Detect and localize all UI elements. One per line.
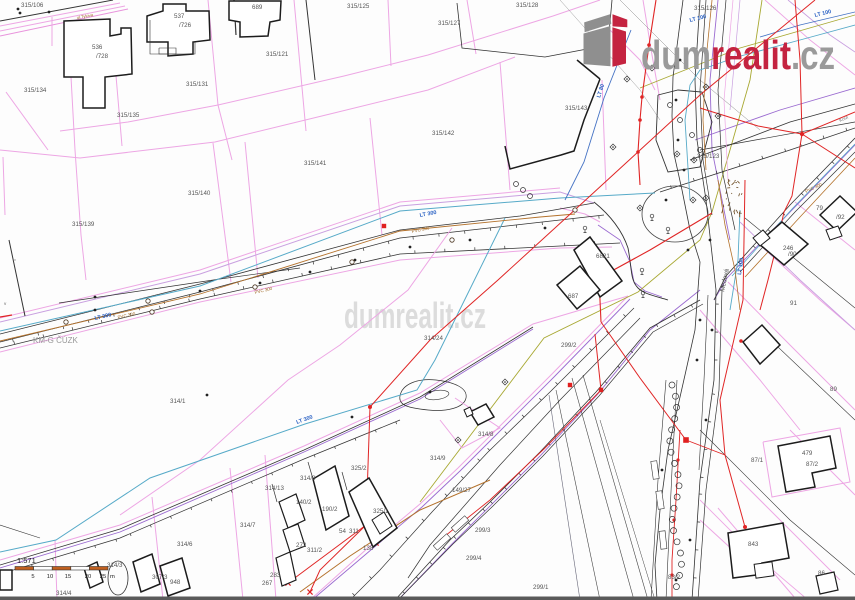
svg-text:1:571: 1:571 xyxy=(17,556,36,565)
svg-text:315/140: 315/140 xyxy=(188,190,211,197)
svg-text:246: 246 xyxy=(783,245,794,252)
svg-text:m: m xyxy=(110,574,115,580)
svg-text:689: 689 xyxy=(252,4,263,11)
svg-text:86: 86 xyxy=(818,570,825,577)
svg-text:6821: 6821 xyxy=(596,253,610,260)
svg-text:315/135: 315/135 xyxy=(117,112,140,119)
svg-text:325/2: 325/2 xyxy=(351,465,367,472)
svg-text:315/141: 315/141 xyxy=(304,160,327,167)
svg-text:25: 25 xyxy=(100,574,106,580)
svg-text:5: 5 xyxy=(31,574,34,580)
svg-text:dumrealit.cz: dumrealit.cz xyxy=(344,295,486,336)
svg-text:843: 843 xyxy=(748,541,759,548)
svg-text:687: 687 xyxy=(568,293,579,300)
svg-text:/726: /726 xyxy=(179,22,192,29)
svg-text:87/1: 87/1 xyxy=(751,457,764,464)
svg-text:315/123: 315/123 xyxy=(697,153,720,160)
svg-text:314/8: 314/8 xyxy=(300,475,316,482)
svg-text:314/7: 314/7 xyxy=(240,522,256,529)
svg-text:299/2: 299/2 xyxy=(561,342,577,349)
svg-text:/92: /92 xyxy=(836,214,845,221)
svg-text:83/2: 83/2 xyxy=(668,574,681,581)
svg-text:315/142: 315/142 xyxy=(432,130,455,137)
svg-text:315/128: 315/128 xyxy=(516,2,539,9)
svg-text:314/24: 314/24 xyxy=(424,335,443,342)
svg-text:315/143: 315/143 xyxy=(565,105,588,112)
svg-text:267: 267 xyxy=(262,580,273,587)
svg-text:283: 283 xyxy=(270,572,281,579)
svg-text:314/4: 314/4 xyxy=(56,590,72,597)
svg-text:/728: /728 xyxy=(96,53,109,60)
svg-text:536: 536 xyxy=(92,44,103,51)
svg-text:15: 15 xyxy=(65,574,71,580)
svg-text:299/1: 299/1 xyxy=(533,584,549,591)
svg-text:315/139: 315/139 xyxy=(72,221,95,228)
svg-text:79: 79 xyxy=(816,205,823,212)
svg-text:311/2: 311/2 xyxy=(307,547,323,554)
svg-text:537: 537 xyxy=(174,13,185,20)
svg-text:311: 311 xyxy=(349,528,359,535)
svg-text:140/2: 140/2 xyxy=(296,499,312,506)
svg-text:315/125: 315/125 xyxy=(347,3,370,10)
svg-text:190/2: 190/2 xyxy=(322,506,338,513)
svg-text:KM-G ČÚZK: KM-G ČÚZK xyxy=(33,336,79,345)
svg-text:948: 948 xyxy=(170,579,181,586)
svg-text:307/3: 307/3 xyxy=(152,574,168,581)
svg-text:10: 10 xyxy=(47,574,53,580)
svg-text:149/27: 149/27 xyxy=(452,487,471,494)
svg-text:/90: /90 xyxy=(788,251,797,258)
svg-text:89: 89 xyxy=(830,386,837,393)
svg-text:479: 479 xyxy=(802,450,813,457)
svg-text:realit: realit xyxy=(711,32,791,78)
svg-text:299/4: 299/4 xyxy=(466,555,482,562)
svg-text:315/127: 315/127 xyxy=(438,20,461,27)
svg-text:20: 20 xyxy=(85,574,91,580)
svg-text:315/131: 315/131 xyxy=(186,81,209,88)
svg-text:54: 54 xyxy=(339,528,346,535)
svg-text:314/6: 314/6 xyxy=(177,541,193,548)
svg-text:315/121: 315/121 xyxy=(266,51,289,58)
svg-text:325/1: 325/1 xyxy=(373,508,389,515)
svg-text:.cz: .cz xyxy=(791,32,835,78)
svg-text:315/106: 315/106 xyxy=(21,2,44,9)
svg-text:138: 138 xyxy=(363,545,374,552)
svg-text:299/3: 299/3 xyxy=(475,527,491,534)
svg-text:v: v xyxy=(14,257,16,262)
svg-text:dum: dum xyxy=(641,32,711,78)
svg-text:314/8: 314/8 xyxy=(478,431,494,438)
svg-text:91: 91 xyxy=(790,300,797,307)
svg-text:315/134: 315/134 xyxy=(24,87,47,94)
svg-text:87/2: 87/2 xyxy=(806,461,819,468)
svg-text:315/126: 315/126 xyxy=(694,5,717,12)
svg-text:314/3: 314/3 xyxy=(107,562,123,569)
svg-text:272: 272 xyxy=(296,542,307,549)
svg-text:314/13: 314/13 xyxy=(265,485,284,492)
svg-text:314/9: 314/9 xyxy=(430,455,446,462)
svg-text:314/1: 314/1 xyxy=(170,398,186,405)
